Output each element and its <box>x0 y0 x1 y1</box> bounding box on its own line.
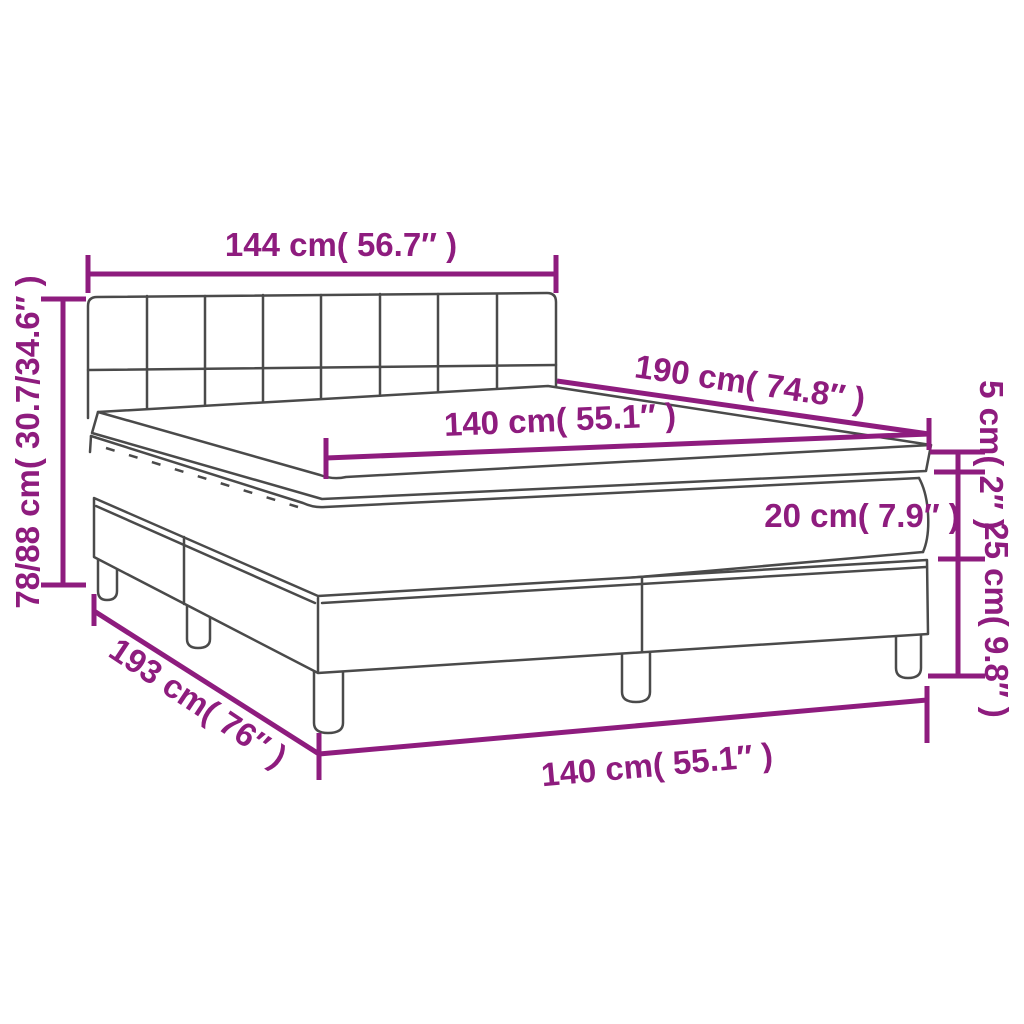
mattress-left-edge <box>90 436 91 452</box>
dim-label-total-height: 78/88 cm( 30.7/34.6″ ) <box>9 275 47 608</box>
dim-label-topper-thickness: 5 cm( 2″ ) <box>972 380 1010 530</box>
dim-label-base-height: 25 cm( 9.8″ ) <box>977 522 1015 718</box>
dim-label-headboard-width: 144 cm( 56.7″ ) <box>225 226 457 264</box>
leg-front-middle <box>622 648 650 702</box>
dimension-diagram: 144 cm( 56.7″ ) 78/88 cm( 30.7/34.6″ ) 1… <box>0 0 1024 1024</box>
leg-front-corner <box>314 670 343 733</box>
dim-total-height-line <box>41 299 86 585</box>
dim-label-mattress-thickness: 20 cm( 7.9″ ) <box>764 497 960 535</box>
